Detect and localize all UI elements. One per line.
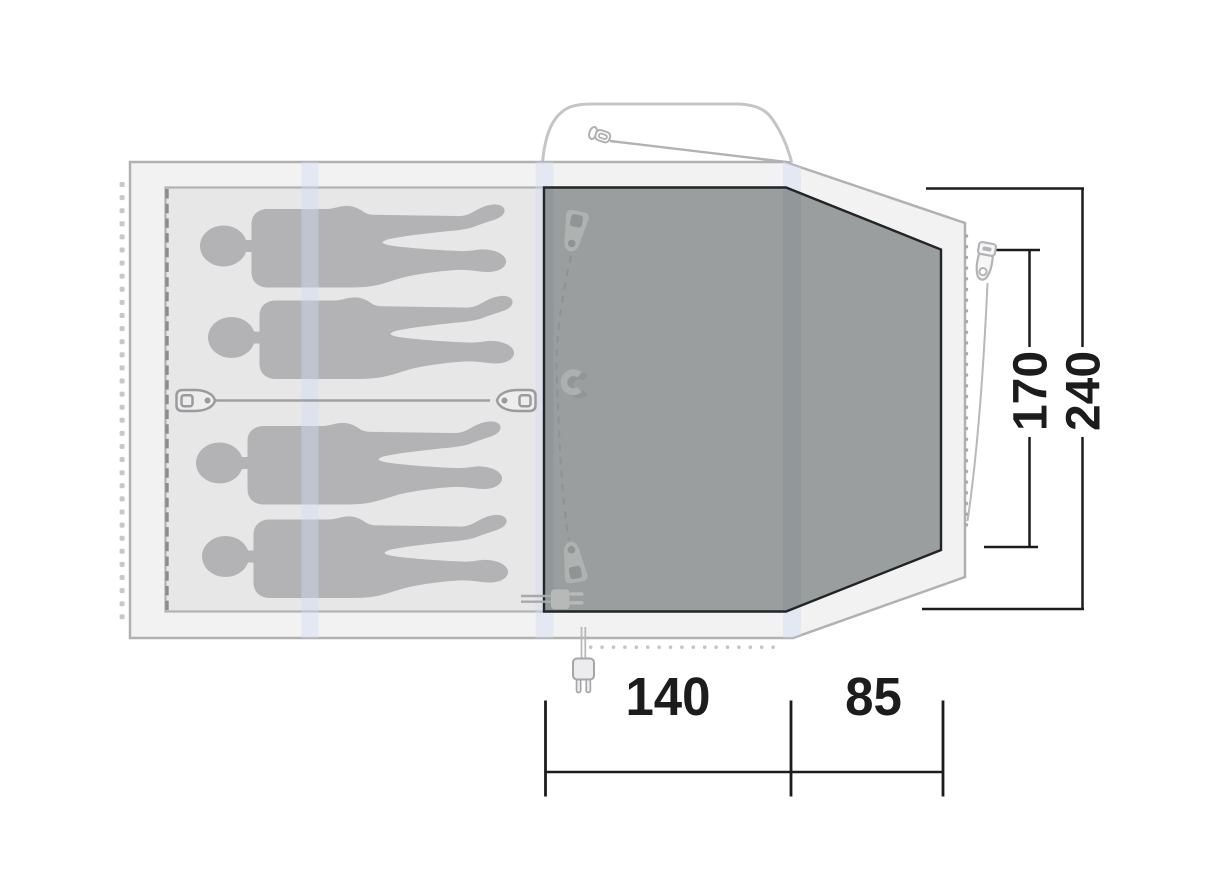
svg-text:140: 140: [625, 667, 710, 728]
svg-text:170: 170: [1005, 351, 1058, 431]
svg-text:240: 240: [1058, 351, 1111, 431]
svg-text:85: 85: [845, 667, 902, 728]
